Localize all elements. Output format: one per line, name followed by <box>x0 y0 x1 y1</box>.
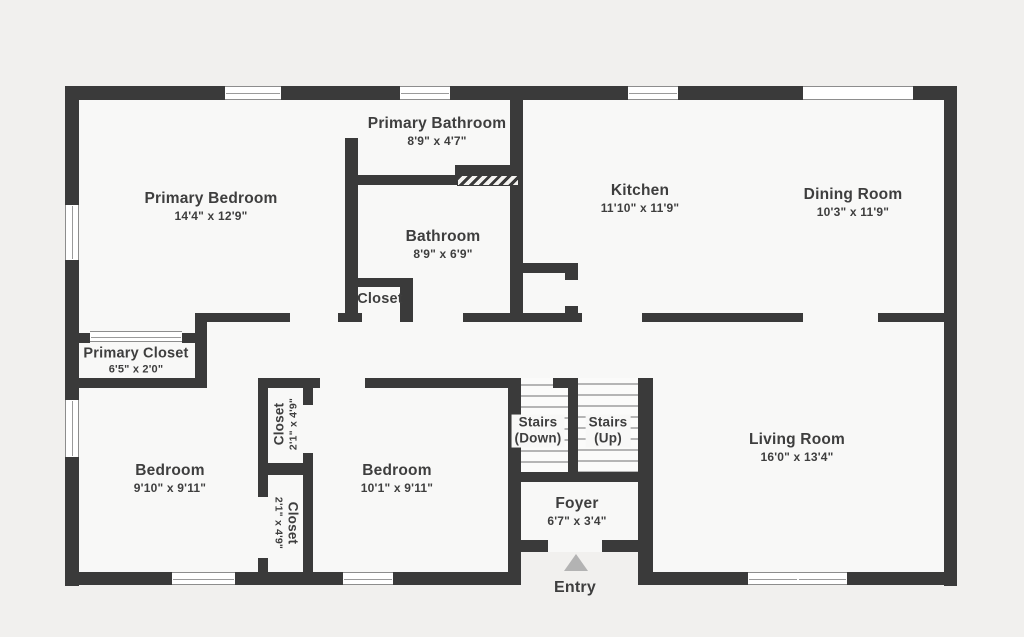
stair-tread <box>521 461 568 463</box>
stairs-up-label-line: (Up) <box>589 431 628 447</box>
window <box>628 86 678 100</box>
wall <box>258 378 268 468</box>
stair-tread <box>521 406 568 408</box>
bedroom-right-label-line: 10'1" x 9'11" <box>361 481 433 496</box>
window <box>400 86 450 100</box>
foyer-label: Foyer6'7" x 3'4" <box>547 495 606 529</box>
stair-tread <box>578 449 638 451</box>
closet-top-label: Closet2'1" x 4'9" <box>271 398 300 450</box>
window <box>748 572 798 585</box>
bedroom-left-label-line: Bedroom <box>134 462 206 481</box>
primary-bedroom-label-line: 14'4" x 12'9" <box>144 209 277 224</box>
closet-top-label-line: 2'1" x 4'9" <box>288 398 301 450</box>
kitchen-label-line: 11'10" x 11'9" <box>601 201 680 216</box>
bathroom-label: Bathroom8'9" x 6'9" <box>406 228 481 262</box>
wall <box>510 100 523 313</box>
bathroom-label-line: 8'9" x 6'9" <box>406 247 481 262</box>
wall <box>944 86 957 586</box>
wall <box>258 558 268 575</box>
bedroom-left-label-line: 9'10" x 9'11" <box>134 481 206 496</box>
kitchen-label: Kitchen11'10" x 11'9" <box>601 182 680 216</box>
wall <box>195 313 207 388</box>
wall <box>568 378 578 482</box>
wall <box>553 378 568 388</box>
stairs-down-label-line: Stairs <box>515 415 562 431</box>
entry-label: Entry <box>554 578 596 598</box>
primary-closet-label: Primary Closet6'5" x 2'0" <box>83 345 188 376</box>
dining-room-label-line: 10'3" x 11'9" <box>804 205 903 220</box>
window <box>172 572 235 585</box>
window <box>225 86 281 100</box>
window <box>65 205 79 260</box>
wall <box>338 313 362 322</box>
living-room-label-line: Living Room <box>749 431 845 450</box>
door-opening <box>565 280 578 306</box>
wall <box>847 572 857 585</box>
entry-label-line: Entry <box>554 578 596 598</box>
closet-bottom-label: Closet2'1" x 4'9" <box>271 497 300 549</box>
window <box>90 331 182 342</box>
entry-arrow-icon <box>564 554 588 571</box>
bedroom-left-label: Bedroom9'10" x 9'11" <box>134 462 206 496</box>
primary-bathroom-label: Primary Bathroom8'9" x 4'7" <box>368 115 506 149</box>
wall <box>878 313 957 322</box>
dining-room-label-line: Dining Room <box>804 186 903 205</box>
stair-tread <box>521 450 568 452</box>
closet-top-label-line: Closet <box>271 398 287 450</box>
stair-tread <box>521 395 568 397</box>
primary-bedroom-label: Primary Bedroom14'4" x 12'9" <box>144 190 277 224</box>
stairs-down-label-line: (Down) <box>515 431 562 447</box>
wall <box>642 313 803 322</box>
wall <box>65 333 90 343</box>
wall <box>303 475 313 575</box>
wall <box>258 463 313 475</box>
stair-tread <box>578 394 638 396</box>
window <box>798 572 847 585</box>
window <box>803 86 913 100</box>
primary-bathroom-label-line: 8'9" x 4'7" <box>368 134 506 149</box>
bedroom-right-label-line: Bedroom <box>361 462 433 481</box>
living-room-label-line: 16'0" x 13'4" <box>749 450 845 465</box>
stair-tread <box>578 383 638 385</box>
wall <box>345 175 457 185</box>
window <box>65 400 79 457</box>
living-room-label: Living Room16'0" x 13'4" <box>749 431 845 465</box>
stairs-up-label-line: Stairs <box>589 415 628 431</box>
stair-tread <box>578 405 638 407</box>
wall <box>508 472 653 482</box>
hall-closet-label: Closet <box>357 291 403 309</box>
window <box>343 572 393 585</box>
wall <box>65 572 521 585</box>
primary-bedroom-label-line: Primary Bedroom <box>144 190 277 209</box>
primary-closet-label-line: 6'5" x 2'0" <box>83 363 188 376</box>
closet-bottom-label-line: Closet <box>284 497 300 549</box>
dining-room-label: Dining Room10'3" x 11'9" <box>804 186 903 220</box>
wall <box>65 378 207 388</box>
door-opening <box>345 100 358 138</box>
foyer-label-line: Foyer <box>547 495 606 514</box>
closet-bottom-label-line: 2'1" x 4'9" <box>271 497 284 549</box>
wall <box>258 475 268 497</box>
door-opening <box>548 540 602 552</box>
wall <box>182 333 207 343</box>
stair-tread <box>578 460 638 462</box>
bathroom-label-line: Bathroom <box>406 228 481 247</box>
floor-plan: Primary Bathroom8'9" x 4'7"Primary Bedro… <box>0 0 1024 637</box>
primary-closet-label-line: Primary Closet <box>83 345 188 363</box>
stairs-up-label: Stairs(Up) <box>586 415 631 448</box>
bedroom-right-label: Bedroom10'1" x 9'11" <box>361 462 433 496</box>
hall-closet-label-line: Closet <box>357 291 403 309</box>
wall <box>463 313 582 322</box>
kitchen-label-line: Kitchen <box>601 182 680 201</box>
stairs-down-label: Stairs(Down) <box>512 415 565 448</box>
primary-bathroom-label-line: Primary Bathroom <box>368 115 506 134</box>
wall <box>197 313 290 322</box>
wall <box>365 378 521 388</box>
wall <box>303 387 313 405</box>
foyer-label-line: 6'7" x 3'4" <box>547 514 606 529</box>
hatched-fixture <box>457 175 519 186</box>
wall <box>738 572 748 585</box>
